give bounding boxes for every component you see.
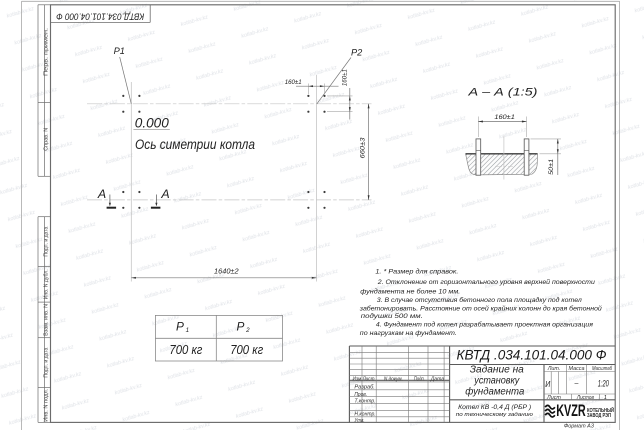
svg-text:Дата: Дата — [430, 376, 444, 382]
svg-text:Масштаб: Масштаб — [592, 366, 613, 372]
svg-text:Масса: Масса — [569, 366, 585, 372]
svg-text:Пров.: Пров. — [354, 392, 367, 398]
svg-text:И: И — [545, 379, 551, 389]
svg-text:2. Отклонение от горизонтально: 2. Отклонение от горизонтального уровня … — [377, 278, 596, 286]
svg-text:–: – — [574, 381, 579, 388]
svg-text:подушки 500 мм.: подушки 500 мм. — [361, 312, 423, 320]
svg-text:А: А — [97, 187, 106, 201]
svg-text:660±3: 660±3 — [359, 137, 366, 158]
svg-text:160±1: 160±1 — [494, 114, 515, 121]
svg-text:P2: P2 — [351, 48, 362, 58]
svg-text:Справ. N: Справ. N — [44, 128, 50, 151]
svg-text:установку: установку — [473, 375, 520, 386]
svg-text:Перв. примен.: Перв. примен. — [44, 27, 50, 76]
svg-text:700 кг: 700 кг — [230, 343, 263, 357]
svg-text:700 кг: 700 кг — [169, 343, 202, 357]
svg-text:Лит.: Лит. — [547, 366, 561, 372]
svg-text:Взам. инв. N: Взам. инв. N — [44, 304, 50, 336]
svg-text:фундамента не более 10 мм.: фундамента не более 10 мм. — [360, 288, 460, 296]
svg-text:Подп. и дата: Подп. и дата — [44, 347, 50, 378]
svg-text:А: А — [160, 187, 169, 201]
svg-text:ЗАВОД РЭП: ЗАВОД РЭП — [587, 413, 611, 419]
svg-text:1640±2: 1640±2 — [214, 266, 239, 275]
svg-text:Разраб.: Разраб. — [354, 385, 375, 391]
svg-text:Подп. и дата: Подп. и дата — [44, 226, 50, 257]
svg-text:Изм.Лист: Изм.Лист — [353, 376, 375, 382]
svg-text:Задание на: Задание на — [470, 364, 525, 375]
svg-text:Утв.: Утв. — [354, 418, 365, 424]
svg-text:забетонировать. Расстояние от: забетонировать. Расстояние от осей крайн… — [359, 305, 603, 313]
svg-text:Ось симетрии котла: Ось симетрии котла — [135, 136, 255, 152]
svg-text:Лист: Лист — [546, 395, 561, 401]
svg-text:Листов: Листов — [576, 395, 594, 401]
svg-text:Котел КВ -0,4 Д (РБР ): Котел КВ -0,4 Д (РБР ) — [458, 404, 531, 411]
svg-text:Инв. N дубл.: Инв. N дубл. — [44, 269, 50, 299]
svg-text:1:20: 1:20 — [598, 379, 609, 389]
svg-text:P1: P1 — [114, 46, 125, 56]
svg-text:KVZR: KVZR — [556, 402, 586, 420]
svg-text:КВТД .034.101.04.000 Ф: КВТД .034.101.04.000 Ф — [457, 348, 607, 363]
svg-text:Н.контр.: Н.контр. — [354, 412, 375, 418]
svg-text:Т.контр.: Т.контр. — [354, 399, 375, 405]
svg-text:160±1: 160±1 — [341, 69, 348, 86]
svg-text:Формат А3: Формат А3 — [564, 423, 595, 429]
svg-text:фундамента: фундамента — [465, 386, 525, 397]
svg-text:по техническому заданию: по техническому заданию — [456, 412, 534, 418]
svg-text:N докум.: N докум. — [384, 376, 403, 382]
svg-text:1: 1 — [604, 395, 607, 401]
svg-text:160±1: 160±1 — [285, 79, 302, 86]
svg-text:КВТД.034.101.04.000 Ф: КВТД.034.101.04.000 Ф — [56, 11, 144, 21]
svg-text:3. В случае отсутствия бетонно: 3. В случае отсутствия бетонного пола пл… — [377, 296, 582, 304]
svg-text:Инв. N подл.: Инв. N подл. — [44, 388, 50, 421]
svg-text:по нагрузкам на фундамент.: по нагрузкам на фундамент. — [360, 329, 457, 337]
svg-text:А – А (1:5): А – А (1:5) — [467, 87, 538, 99]
svg-text:Подп.: Подп. — [414, 376, 425, 382]
svg-text:4. Фундамент под котел разраба: 4. Фундамент под котел разрабатывает про… — [376, 321, 594, 329]
svg-text:1. * Размер для справок.: 1. * Размер для справок. — [375, 268, 458, 276]
svg-text:50±1: 50±1 — [548, 159, 555, 175]
